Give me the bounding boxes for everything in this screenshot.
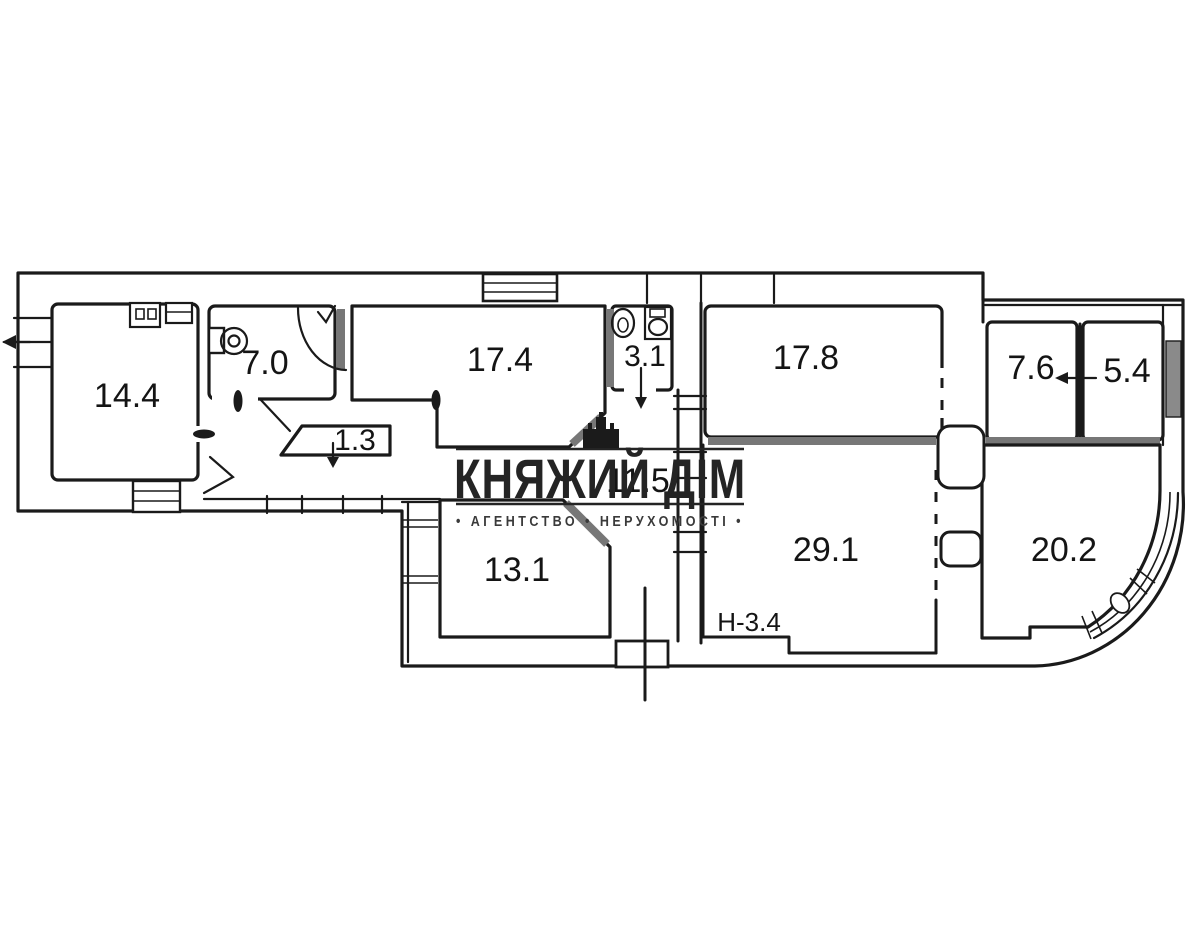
window-arrow-icon (2, 335, 16, 349)
window-right (1166, 341, 1181, 417)
door-leaf-icon (234, 390, 243, 412)
door-leaf-icon (432, 390, 441, 410)
room-area-label-1-3: 1.3 (334, 424, 376, 457)
room-area-label-17-4: 17.4 (467, 341, 533, 379)
room-area-label-7-0: 7.0 (241, 344, 288, 382)
watermark-title: КНЯЖИЙ ДІМ (454, 447, 746, 510)
room-area-label-14-4: 14.4 (94, 377, 160, 415)
room-area-label-5-4: 5.4 (1103, 352, 1150, 390)
column-pillar (941, 532, 981, 566)
window-top (483, 274, 557, 301)
room-area-label-3-1: 3.1 (624, 340, 666, 373)
room-area-label-7-6: 7.6 (1007, 349, 1054, 387)
window-bottom-left (133, 481, 180, 512)
door-leaf-icon (193, 430, 215, 439)
room-area-label-29-1: 29.1 (793, 531, 859, 569)
floorplan-canvas: 14.4 7.0 17.4 3.1 17.8 7.6 5.4 1.3 11.5 … (0, 0, 1200, 945)
room-area-label-20-2: 20.2 (1031, 531, 1097, 569)
room-area-label-13-1: 13.1 (484, 551, 550, 589)
watermark-subtitle: • АГЕНТСТВО • НЕРУХОМОСТІ • (456, 514, 744, 530)
room-area-label-17-8: 17.8 (773, 339, 839, 377)
ceiling-height-label: Н-3.4 (717, 607, 781, 637)
radiator-icon (166, 303, 192, 323)
column-pillar (938, 426, 984, 488)
